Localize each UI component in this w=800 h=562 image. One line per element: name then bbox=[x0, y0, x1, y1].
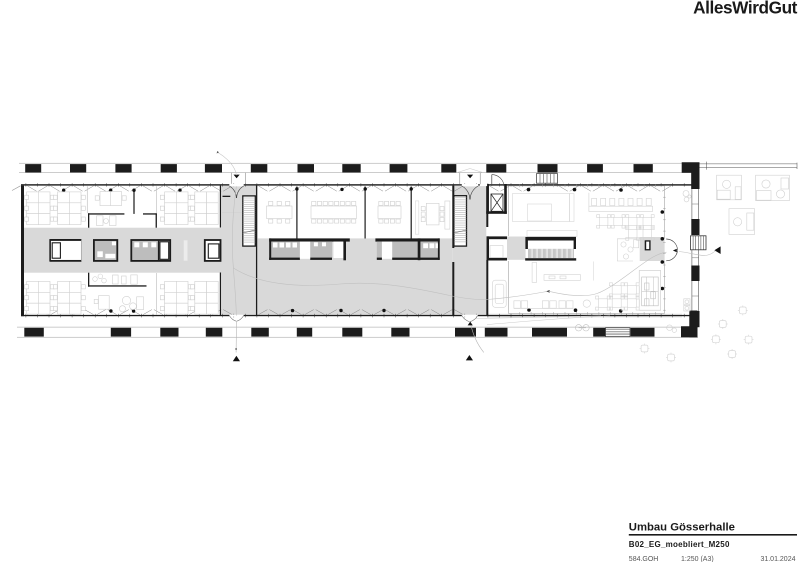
svg-text:AllesWirdGut: AllesWirdGut bbox=[693, 0, 798, 18]
svg-text:B02_EG_moebliert_M250: B02_EG_moebliert_M250 bbox=[629, 540, 730, 549]
svg-text:1:250 (A3): 1:250 (A3) bbox=[681, 556, 714, 562]
svg-text:Umbau Gösserhalle: Umbau Gösserhalle bbox=[629, 521, 735, 533]
svg-text:584.GOH: 584.GOH bbox=[629, 556, 659, 562]
svg-text:31.01.2024: 31.01.2024 bbox=[760, 556, 795, 562]
